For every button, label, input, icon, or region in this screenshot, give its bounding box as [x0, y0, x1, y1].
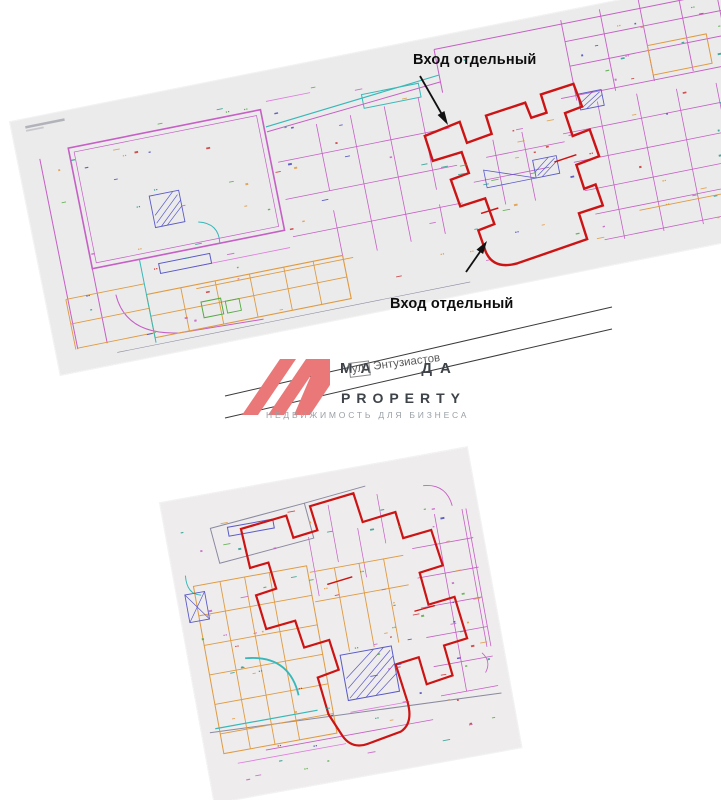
- floor-plan-sheet-bottom: [160, 447, 522, 800]
- entrance-label-top: Вход отдельный: [413, 52, 537, 68]
- paper-bottom: [160, 447, 522, 800]
- floor-plan-sheet-top: [10, 0, 721, 375]
- street-prefix: ул.: [348, 360, 371, 378]
- street-label: ул. Энтузиастов: [348, 352, 441, 376]
- property-label: PROPERTY: [341, 390, 466, 406]
- floor-plan-bottom-drawing: [160, 447, 522, 800]
- screenshot-root: Вход отдельный Вход отдельный МАДА PROPE…: [0, 0, 721, 800]
- floor-plan-top-drawing: [10, 0, 721, 375]
- entrance-label-bottom: Вход отдельный: [390, 296, 514, 312]
- street-name: Энтузиастов: [373, 352, 441, 373]
- logo-m-icon: [238, 353, 334, 415]
- tagline: НЕДВИЖИМОСТЬ ДЛЯ БИЗНЕСА: [266, 410, 469, 420]
